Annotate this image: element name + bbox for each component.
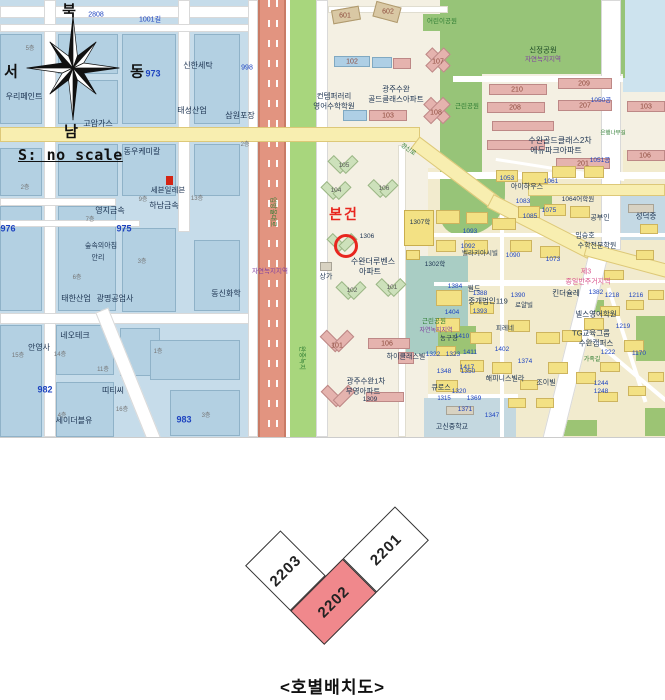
map-label: 수완캠퍼스 — [579, 339, 614, 347]
map-label: 975 — [116, 225, 131, 234]
map-block — [628, 386, 646, 396]
map-block — [510, 240, 532, 252]
map-block — [570, 206, 590, 218]
map-label: 102 — [346, 59, 358, 66]
map-block — [393, 58, 411, 69]
map-label: 1093 — [463, 229, 477, 236]
unit-layout-diagram: 2203 2202 2201 <호별배치도> — [0, 437, 665, 700]
map-block — [436, 210, 460, 224]
map-label: 골드클래스아파트 — [368, 95, 423, 103]
map-label: 601 — [339, 13, 351, 20]
map-label: 106 — [381, 341, 393, 348]
map-label: 자연녹지지역 — [419, 328, 452, 334]
map-label: 신한세탁 — [183, 62, 212, 70]
map-label: 1064어학원 — [562, 197, 594, 204]
map-block — [600, 362, 620, 372]
map-label: 976 — [0, 225, 15, 234]
map-block — [372, 57, 392, 68]
map-label: 1320 — [452, 389, 466, 396]
map-label: 태한산업 — [61, 295, 90, 303]
map-label: 완충녹지 — [298, 346, 305, 370]
map-label: 209 — [578, 81, 590, 88]
map-block — [258, 0, 260, 437]
map-label: 1402 — [495, 347, 509, 354]
map-label: 14층 — [54, 352, 66, 358]
map-label: 상가 — [320, 274, 333, 281]
map-block — [0, 198, 116, 206]
map-label: 101 — [331, 343, 343, 350]
map-label: 104 — [331, 188, 342, 195]
map-label: 973 — [145, 70, 160, 79]
compass-rose-icon — [25, 14, 121, 122]
map-label: 가족길 — [584, 357, 601, 363]
map-label: 1322 — [426, 352, 440, 359]
map-label: 102 — [347, 288, 358, 295]
map-label: 수학전문학원 — [578, 243, 617, 250]
map-label: 킨더슐레 — [552, 289, 580, 297]
map-label: 11층 — [97, 367, 109, 373]
map-label: 신정공원 — [529, 46, 557, 54]
map-block — [492, 218, 516, 230]
map-block — [601, 0, 621, 250]
map-block — [316, 0, 328, 437]
map-label: 1315 — [437, 396, 450, 402]
map-label: 1170 — [632, 351, 646, 358]
map-label: TG교육그룹 — [572, 329, 610, 337]
map-label: 1001길 — [139, 17, 161, 24]
map-block — [320, 262, 332, 271]
map-label: 안리 — [92, 255, 105, 262]
map-label: 103 — [382, 113, 394, 120]
map-block — [150, 340, 240, 380]
map-label: 농구장 — [440, 336, 458, 343]
map-label: 1302학 — [425, 262, 445, 269]
map-label: 1222 — [601, 350, 615, 357]
compass-south-label: 남 — [64, 121, 78, 142]
map-label: 4층 — [58, 413, 67, 419]
map-label: 조이빌 — [536, 380, 555, 387]
map-label: 1369 — [467, 396, 481, 403]
map-label: 1073 — [546, 257, 560, 264]
map-label: 제3 — [581, 269, 591, 276]
map-label: 근린공원 — [422, 319, 446, 326]
map-label: 1090 — [506, 253, 520, 260]
map-block — [552, 166, 576, 178]
map-block — [536, 332, 560, 344]
map-label: 아이하우스 — [511, 184, 543, 191]
map-block — [194, 144, 240, 196]
map-label: 영어수학학원 — [313, 102, 354, 110]
map-label: 아파트 — [359, 268, 381, 276]
map-label: 1075 — [542, 208, 556, 215]
map-label: 101 — [387, 285, 398, 292]
map-block — [536, 398, 554, 408]
map-label: 컨템퍼러리 — [317, 92, 352, 100]
map-label: 에듀파크아파트 — [530, 147, 582, 155]
map-label: 210 — [511, 87, 523, 94]
map-label: 1348 — [437, 369, 451, 376]
location-map: 28081001길998신한세탁973우리페인트태성산업삼원포장고압가스동우케미… — [0, 0, 665, 438]
map-block — [584, 166, 604, 178]
map-block — [466, 212, 488, 224]
map-label: 6층 — [73, 275, 82, 281]
map-label: 숲속의아침 — [85, 243, 117, 250]
map-label: 고신중학교 — [436, 424, 468, 431]
map-label: 106 — [639, 153, 651, 160]
map-label: 벨라키아시빌 — [462, 251, 498, 258]
map-label: 1244 — [594, 381, 608, 388]
map-label: 103 — [640, 104, 652, 111]
map-label: 1350 — [461, 369, 475, 376]
map-label: 105 — [339, 163, 350, 170]
map-label: 중개법인119 — [468, 297, 508, 305]
map-label: 107 — [432, 59, 444, 66]
map-label: 602 — [382, 9, 394, 16]
map-label: 네오테크 — [60, 332, 89, 340]
map-label: 세븐일레븐 — [151, 186, 186, 194]
map-label: 208 — [509, 105, 521, 112]
map-block — [436, 290, 462, 306]
map-block — [636, 250, 654, 260]
map-block — [640, 224, 658, 234]
subject-marker-label: 본건 — [329, 204, 359, 224]
map-label: 안영사 — [28, 344, 50, 352]
map-label: 광주수완1차 — [347, 377, 386, 385]
compass-west-label: 서 — [4, 61, 18, 82]
map-label: 983 — [176, 416, 191, 425]
map-label: 1411 — [463, 350, 477, 357]
map-label: 하이클래스빌 — [387, 354, 426, 361]
map-block — [528, 184, 665, 196]
map-label: 1347 — [485, 413, 499, 420]
compass-north-label: 북 — [62, 0, 76, 21]
map-label: 공부인 — [590, 215, 609, 222]
map-label: 성덕중 — [636, 212, 657, 220]
map-label: 1248 — [594, 389, 608, 396]
map-block — [508, 398, 526, 408]
unit-group: 2203 2202 2201 — [245, 461, 429, 645]
map-block — [470, 332, 492, 344]
map-label: 1053 — [500, 176, 514, 183]
map-label: 1306 — [360, 234, 374, 241]
map-label: 1061 — [544, 179, 558, 186]
map-block — [645, 408, 665, 436]
compass-east-label: 동 — [130, 61, 144, 82]
map-block — [548, 362, 568, 374]
map-label: 982 — [37, 386, 52, 395]
map-label: 9층 — [139, 197, 148, 203]
map-label: 1216 — [629, 293, 643, 300]
map-label: 15층 — [12, 353, 24, 359]
map-label: 은행나무길 — [600, 131, 625, 137]
map-label: 넬스영어학원 — [575, 310, 616, 318]
map-label: 임승호 — [575, 233, 594, 240]
map-label: 근린공원 — [455, 104, 479, 111]
map-block — [343, 110, 367, 121]
map-label: 2층 — [21, 185, 30, 191]
map-label: 1085 — [523, 214, 537, 221]
map-block — [404, 210, 434, 246]
map-label: 1388 — [473, 291, 487, 298]
map-block — [0, 325, 42, 437]
map-label: 영지금속 — [95, 207, 124, 215]
map-label: 106 — [379, 186, 390, 193]
map-label: 1050공 — [591, 98, 611, 105]
map-label: 1083 — [516, 199, 530, 206]
map-block — [492, 121, 554, 131]
map-block — [290, 0, 316, 437]
map-block — [166, 176, 173, 185]
map-label: 1307학 — [410, 220, 430, 227]
map-label: 207 — [579, 103, 591, 110]
map-label: 종일반주거지역 — [565, 279, 610, 286]
map-block — [406, 250, 420, 260]
map-label: 1404 — [445, 310, 459, 317]
map-label: 태성산업 — [177, 107, 206, 115]
map-label: 광주수완 — [382, 85, 410, 93]
map-label: 1390 — [511, 293, 525, 300]
map-label: 자연녹지지역 — [525, 57, 561, 64]
map-label: 1309 — [363, 397, 377, 404]
map-label: 하남금속 — [149, 202, 178, 210]
map-label: 동우케미칼 — [124, 148, 161, 156]
map-label: 1384 — [448, 284, 462, 291]
map-block — [276, 0, 278, 437]
map-block — [178, 0, 190, 232]
map-label: 띠티씨 — [102, 387, 124, 395]
map-block — [194, 240, 240, 311]
map-block — [626, 300, 644, 310]
map-label: 수완골드클래스2차 — [528, 137, 591, 145]
map-label: 2층 — [241, 142, 250, 148]
map-block — [436, 240, 456, 252]
map-label: 1371 — [458, 407, 472, 414]
map-block — [0, 313, 258, 324]
map-block — [620, 0, 665, 92]
map-label: 201 — [577, 161, 589, 168]
map-block — [648, 372, 664, 382]
map-label: 1218 — [605, 293, 619, 300]
map-label: 1층 — [154, 349, 163, 355]
diagram-caption: <호별배치도> — [0, 673, 665, 698]
map-label: 1219 — [616, 324, 630, 331]
map-label: 3층 — [202, 413, 211, 419]
map-block — [648, 290, 664, 300]
map-label: 16층 — [116, 407, 128, 413]
map-label: 1323 — [446, 352, 460, 359]
map-block — [0, 127, 420, 142]
report-page: 28081001길998신한세탁973우리페인트태성산업삼원포장고압가스동우케미… — [0, 0, 665, 700]
map-label: 부영아파트 — [346, 387, 381, 395]
subject-marker-ring — [334, 234, 358, 258]
map-label: 108 — [430, 110, 442, 117]
map-label: 998 — [241, 65, 253, 72]
unit-label: 2201 — [367, 530, 405, 568]
map-label: 수완더루벤스 — [351, 258, 395, 266]
map-label: 13층 — [191, 196, 203, 202]
unit-label: 2202 — [314, 583, 352, 621]
unit-label: 2203 — [266, 551, 304, 589]
map-label: 어린이공원 — [427, 19, 457, 26]
map-label: 임방울대로 — [269, 197, 276, 227]
map-label: 동신화학 — [211, 290, 240, 298]
map-label: 해피니스빌라 — [486, 376, 525, 383]
map-label: 광명공업사 — [97, 295, 134, 303]
map-label: 1374 — [518, 359, 532, 366]
map-label: 자연녹지지역 — [252, 269, 288, 276]
map-label: 큐로스 — [431, 385, 450, 392]
map-label: 삼원포장 — [225, 112, 254, 120]
map-label: 3층 — [138, 259, 147, 265]
map-label: 7층 — [86, 217, 95, 223]
map-label: 1393 — [473, 309, 487, 316]
scale-note: S: no scale — [18, 146, 123, 164]
map-label: 1382 — [589, 290, 603, 297]
map-block — [492, 362, 512, 374]
map-label: 1051공 — [590, 158, 610, 165]
map-label: 로얄빌 — [515, 303, 533, 310]
map-label: 피레네 — [496, 326, 514, 333]
